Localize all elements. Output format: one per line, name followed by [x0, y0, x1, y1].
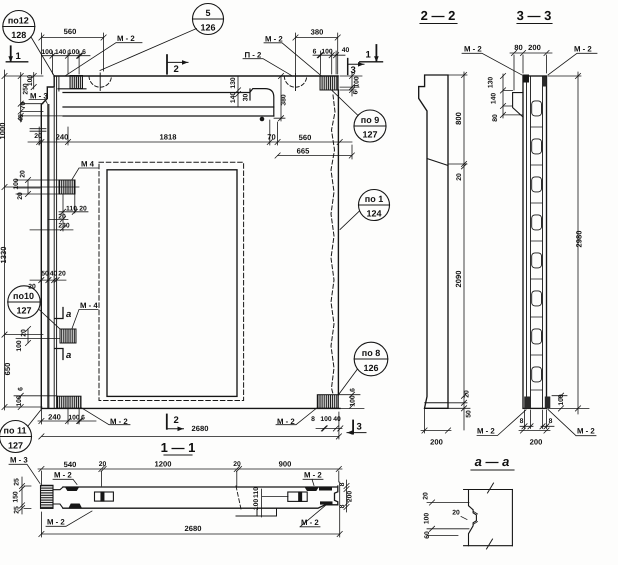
svg-text:100: 100 — [354, 76, 361, 88]
svg-text:124: 124 — [366, 209, 381, 219]
svg-text:127: 127 — [362, 130, 377, 140]
svg-text:60: 60 — [424, 531, 431, 539]
svg-text:100: 100 — [27, 75, 34, 87]
svg-text:240: 240 — [56, 133, 69, 142]
svg-text:20: 20 — [21, 329, 28, 337]
svg-text:380: 380 — [311, 28, 324, 37]
svg-text:М - 2: М - 2 — [464, 45, 482, 54]
svg-text:126: 126 — [200, 23, 215, 33]
svg-text:20: 20 — [99, 461, 107, 468]
svg-text:М - 2: М - 2 — [304, 471, 322, 480]
svg-text:100: 100 — [16, 395, 23, 407]
svg-text:380: 380 — [281, 94, 288, 106]
svg-text:140: 140 — [230, 92, 237, 104]
svg-text:8: 8 — [520, 418, 524, 425]
svg-text:М - 2: М - 2 — [577, 427, 595, 436]
svg-text:1330: 1330 — [0, 247, 8, 264]
svg-text:100: 100 — [253, 499, 260, 511]
svg-text:20: 20 — [452, 510, 460, 517]
svg-text:70: 70 — [20, 102, 27, 110]
svg-text:М - 4: М - 4 — [80, 301, 98, 310]
svg-text:200: 200 — [530, 438, 543, 447]
svg-text:М - 2: М - 2 — [117, 34, 135, 43]
svg-text:М - 2: М - 2 — [110, 417, 128, 426]
svg-text:900: 900 — [279, 460, 292, 469]
svg-text:130: 130 — [230, 77, 237, 89]
svg-text:200: 200 — [528, 43, 541, 52]
svg-text:800: 800 — [454, 112, 463, 125]
svg-text:200: 200 — [347, 491, 354, 503]
svg-text:40: 40 — [18, 114, 25, 122]
svg-text:М - 3: М - 3 — [30, 92, 48, 101]
svg-text:по 9: по 9 — [361, 115, 379, 125]
svg-text:1818: 1818 — [160, 133, 177, 142]
svg-text:М - 2: М - 2 — [574, 45, 592, 54]
svg-text:650: 650 — [3, 363, 12, 376]
svg-text:по12: по12 — [8, 16, 29, 26]
svg-text:560: 560 — [64, 27, 77, 36]
svg-text:20: 20 — [464, 390, 471, 398]
svg-text:80: 80 — [492, 114, 499, 122]
svg-text:М - 2: М - 2 — [477, 427, 495, 436]
svg-text:6: 6 — [313, 49, 317, 56]
svg-text:540: 540 — [64, 460, 77, 469]
svg-text:126: 126 — [363, 363, 378, 373]
svg-text:М - 2: М - 2 — [47, 518, 65, 527]
svg-text:8: 8 — [311, 416, 315, 423]
svg-text:100: 100 — [558, 394, 565, 406]
svg-text:6: 6 — [81, 415, 85, 422]
svg-text:2: 2 — [174, 415, 179, 426]
svg-text:по 11: по 11 — [4, 426, 27, 436]
svg-text:200: 200 — [430, 438, 443, 447]
svg-text:1000: 1000 — [0, 123, 7, 140]
svg-text:30: 30 — [243, 94, 250, 102]
svg-text:а: а — [66, 350, 71, 361]
svg-text:100: 100 — [350, 395, 357, 407]
svg-text:665: 665 — [297, 147, 310, 156]
svg-text:2: 2 — [174, 64, 179, 75]
svg-text:130: 130 — [488, 77, 495, 89]
svg-text:2680: 2680 — [185, 524, 202, 533]
svg-text:20: 20 — [20, 170, 27, 178]
svg-text:20: 20 — [58, 214, 66, 221]
svg-text:128: 128 — [11, 30, 26, 40]
svg-text:50: 50 — [41, 271, 49, 278]
svg-text:6: 6 — [353, 90, 360, 94]
svg-text:127: 127 — [8, 441, 23, 451]
svg-text:6: 6 — [350, 388, 357, 392]
svg-text:100: 100 — [13, 178, 20, 190]
svg-text:М - 3: М - 3 — [10, 456, 28, 465]
svg-text:2980: 2980 — [575, 231, 584, 248]
svg-text:100: 100 — [68, 415, 80, 422]
svg-text:8: 8 — [549, 418, 553, 425]
svg-text:110: 110 — [253, 487, 260, 498]
svg-text:100: 100 — [320, 416, 332, 423]
svg-text:25: 25 — [14, 506, 21, 514]
svg-text:1: 1 — [366, 50, 372, 61]
svg-text:40: 40 — [333, 416, 341, 423]
svg-text:по10: по10 — [13, 291, 34, 301]
svg-text:230: 230 — [58, 223, 70, 230]
svg-text:100: 100 — [16, 340, 23, 352]
svg-text:20: 20 — [34, 133, 42, 140]
svg-text:50: 50 — [466, 410, 473, 418]
svg-text:2090: 2090 — [454, 271, 463, 288]
svg-text:1 — 1: 1 — 1 — [161, 440, 196, 455]
svg-text:М 4: М 4 — [81, 160, 95, 169]
svg-text:3: 3 — [357, 422, 362, 433]
svg-text:5: 5 — [205, 8, 210, 18]
svg-text:1: 1 — [16, 51, 22, 62]
svg-text:М - 2: М - 2 — [301, 518, 319, 527]
svg-text:240: 240 — [48, 413, 61, 422]
svg-text:100: 100 — [41, 49, 53, 56]
svg-text:20: 20 — [17, 192, 24, 200]
svg-text:6: 6 — [82, 49, 86, 56]
svg-text:1200: 1200 — [155, 460, 172, 469]
svg-text:560: 560 — [299, 133, 312, 142]
svg-text:25: 25 — [14, 478, 21, 486]
svg-text:3: 3 — [351, 65, 356, 76]
svg-text:100: 100 — [321, 49, 333, 56]
svg-text:а: а — [66, 309, 71, 320]
svg-text:20: 20 — [233, 461, 241, 468]
svg-text:П - 2: П - 2 — [245, 51, 263, 60]
svg-text:20: 20 — [423, 492, 430, 500]
svg-text:100: 100 — [68, 49, 80, 56]
svg-text:3 — 3: 3 — 3 — [517, 8, 552, 23]
svg-text:по 1: по 1 — [365, 194, 383, 204]
svg-text:20: 20 — [456, 173, 463, 181]
svg-text:по 8: по 8 — [362, 348, 380, 358]
svg-text:20: 20 — [79, 206, 87, 213]
svg-text:140: 140 — [55, 49, 67, 56]
svg-text:70: 70 — [267, 133, 275, 142]
svg-text:М - 2: М - 2 — [277, 417, 295, 426]
svg-text:М - 2: М - 2 — [54, 471, 72, 480]
svg-text:40: 40 — [342, 47, 350, 54]
svg-text:6: 6 — [18, 387, 25, 391]
svg-text:80: 80 — [514, 43, 522, 52]
svg-text:2680: 2680 — [192, 424, 209, 433]
svg-text:2 — 2: 2 — 2 — [421, 8, 456, 23]
svg-text:М - 2: М - 2 — [265, 35, 283, 44]
svg-text:а — а: а — а — [475, 454, 510, 469]
svg-text:127: 127 — [16, 306, 31, 316]
svg-text:110: 110 — [66, 206, 77, 213]
svg-text:140: 140 — [491, 93, 498, 105]
svg-text:20: 20 — [58, 271, 66, 278]
svg-text:150: 150 — [13, 491, 20, 503]
svg-text:100: 100 — [424, 513, 431, 525]
svg-text:40: 40 — [50, 271, 58, 278]
